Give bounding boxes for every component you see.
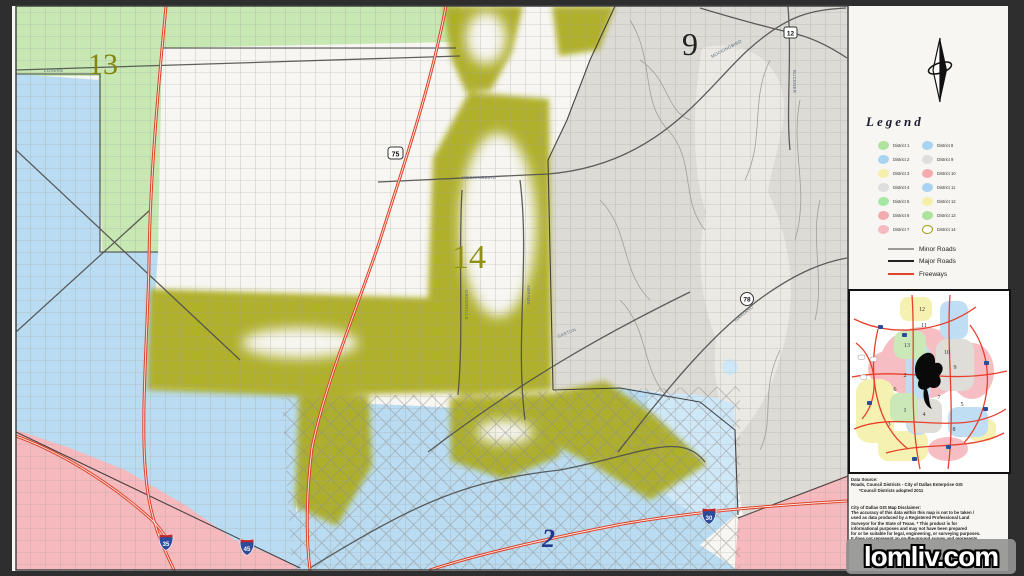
tx-12-shield: 12 — [784, 27, 797, 38]
legend-item: District 3 — [878, 167, 909, 179]
legend-item: District 13 — [922, 209, 956, 221]
district-swatch — [922, 169, 933, 178]
freeway-line — [888, 273, 914, 275]
legend-label: District 4 — [893, 185, 909, 190]
district-swatch — [878, 169, 889, 178]
svg-text:12: 12 — [787, 31, 795, 38]
source-line: *Council Districts adopted 2011 — [851, 488, 1007, 493]
legend-label: District 13 — [937, 213, 956, 218]
legend-freeways: Freeways — [888, 269, 947, 279]
legend-label: District 8 — [937, 143, 953, 148]
legend-label: District 10 — [937, 171, 956, 176]
district-swatch — [922, 197, 933, 206]
legend-label: Freeways — [919, 271, 947, 278]
legend-label: District 3 — [893, 171, 909, 176]
legend-label: District 14 — [937, 227, 956, 232]
legend-item: District 11 — [922, 181, 955, 193]
svg-text:35: 35 — [163, 542, 170, 548]
legend-label: District 7 — [893, 227, 909, 232]
legend-item: District 10 — [922, 167, 956, 179]
svg-text:13: 13 — [904, 343, 910, 349]
minor-road-line — [888, 248, 914, 249]
legend-label: District 11 — [937, 185, 955, 190]
legend-label: Major Roads — [919, 258, 956, 265]
svg-text:45: 45 — [244, 547, 251, 553]
district-swatch — [922, 211, 933, 220]
svg-text:12: 12 — [919, 307, 925, 313]
legend-label: Minor Roads — [919, 246, 956, 253]
district-swatch — [922, 141, 933, 150]
legend-label: District 12 — [937, 199, 956, 204]
legend-item: District 5 — [878, 195, 909, 207]
svg-text:75: 75 — [392, 152, 400, 159]
legend-item: District 7 — [878, 223, 909, 235]
app-frame: 75 12 78 30 45 — [0, 0, 1024, 576]
district-13-label: 13 — [88, 48, 118, 81]
svg-text:11: 11 — [921, 323, 927, 329]
svg-text:78: 78 — [743, 297, 751, 304]
legend-label: District 2 — [893, 157, 909, 162]
tx-78-shield: 78 — [741, 293, 754, 306]
svg-text:9: 9 — [954, 365, 957, 371]
svg-text:3: 3 — [888, 422, 891, 428]
disclaimer-text: City of Dallas GIS Map Disclaimer: The a… — [851, 505, 1009, 542]
svg-text:BUCKNER: BUCKNER — [792, 70, 797, 93]
svg-text:MOCKINGBIRD: MOCKINGBIRD — [462, 175, 496, 180]
svg-text:GREENVILLE: GREENVILLE — [464, 290, 469, 320]
legend-item: District 6 — [878, 209, 909, 221]
watermark[interactable]: lomliv.com — [846, 539, 1016, 574]
north-arrow-icon — [922, 36, 958, 106]
district-swatch — [878, 225, 889, 234]
district-swatch — [878, 183, 889, 192]
major-road-line — [888, 260, 914, 261]
us-75-shield: 75 — [388, 147, 403, 159]
district-14-label: 14 — [452, 239, 486, 276]
legend-item: District 8 — [922, 139, 953, 151]
svg-text:LOVERS: LOVERS — [44, 68, 63, 73]
svg-text:7: 7 — [938, 395, 941, 401]
svg-text:1: 1 — [904, 408, 907, 414]
svg-text:10: 10 — [944, 350, 950, 356]
minor-roads-layer — [16, 6, 848, 571]
legend-label: District 5 — [893, 199, 909, 204]
legend-minor-roads: Minor Roads — [888, 244, 956, 254]
svg-text:ABRAMS: ABRAMS — [526, 285, 531, 305]
legend-label: District 9 — [937, 157, 953, 162]
svg-text:4: 4 — [923, 412, 926, 418]
watermark-text: lomliv.com — [864, 541, 998, 573]
svg-text:5: 5 — [961, 402, 964, 408]
svg-text:2: 2 — [904, 373, 907, 379]
legend-label: District 6 — [893, 213, 909, 218]
legend-item: District 2 — [878, 153, 909, 165]
inset-overview-map: 12 11 13 10 9 2 6 7 5 1 4 3 8 — [848, 289, 1011, 474]
legend-item: District 4 — [878, 181, 909, 193]
district-swatch — [878, 155, 889, 164]
legend-item: District 9 — [922, 153, 953, 165]
legend-item: District 14 — [922, 223, 956, 235]
svg-text:30: 30 — [706, 516, 713, 522]
district-swatch — [878, 141, 889, 150]
district-2-label: 2 — [541, 524, 555, 553]
svg-text:8: 8 — [953, 427, 956, 433]
legend-label: District 1 — [893, 143, 909, 148]
svg-text:6: 6 — [894, 387, 897, 393]
data-source-text: Data Source: Roads, Council Districts - … — [851, 477, 1007, 493]
district-swatch — [878, 211, 889, 220]
district-14-swatch — [922, 225, 933, 234]
district-9-label: 9 — [682, 26, 698, 62]
district-swatch — [922, 183, 933, 192]
legend-item: District 1 — [878, 139, 909, 151]
district-swatch — [878, 197, 889, 206]
legend-item: District 12 — [922, 195, 956, 207]
legend-major-roads: Major Roads — [888, 256, 956, 266]
legend-title: Legend — [866, 114, 924, 130]
district-swatch — [922, 155, 933, 164]
